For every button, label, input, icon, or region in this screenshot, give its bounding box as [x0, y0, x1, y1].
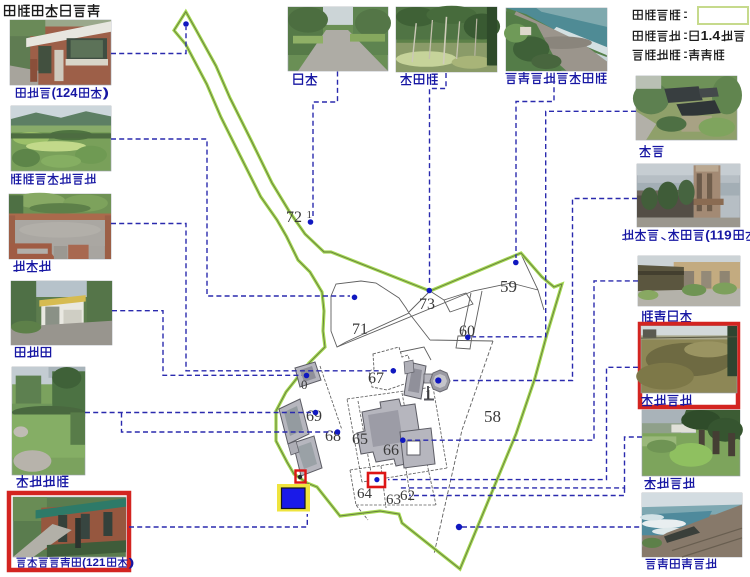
svg-text:63: 63 [386, 492, 401, 508]
svg-text:66: 66 [383, 442, 399, 459]
svg-text:64: 64 [357, 486, 373, 502]
svg-text:1.4: 1.4 [701, 29, 721, 43]
svg-text:): ) [129, 557, 135, 569]
svg-text:1: 1 [425, 388, 432, 403]
svg-text:): ) [103, 86, 109, 100]
svg-text:58: 58 [484, 407, 501, 426]
svg-text:71: 71 [352, 321, 368, 338]
svg-text:65: 65 [352, 431, 368, 448]
svg-text:(121: (121 [82, 557, 106, 569]
svg-text:(119: (119 [705, 227, 731, 242]
svg-text:0: 0 [301, 377, 308, 392]
svg-text:59: 59 [500, 277, 517, 296]
svg-text:73: 73 [419, 296, 435, 313]
svg-text:67: 67 [368, 370, 384, 387]
svg-text:62: 62 [400, 488, 415, 504]
svg-text:(124: (124 [52, 86, 78, 100]
svg-text:1: 1 [307, 209, 313, 221]
svg-text:72: 72 [286, 209, 302, 226]
